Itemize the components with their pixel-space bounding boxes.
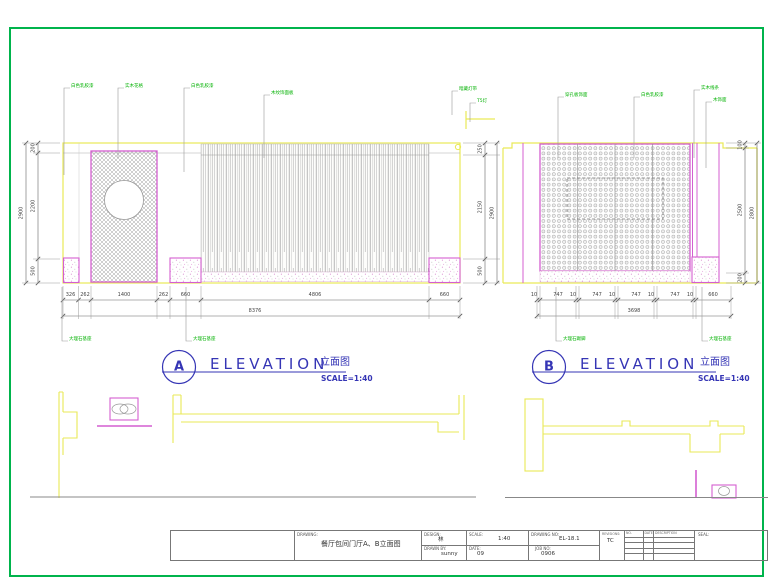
plan-furniture-b <box>696 470 736 498</box>
tb-rev-line <box>624 553 694 554</box>
wood-slat-panel <box>201 144 429 272</box>
rev-col-no: NO. <box>626 532 632 535</box>
plan-view-a <box>59 392 464 498</box>
plan-furniture-a <box>97 398 152 426</box>
tb-rev-line <box>624 548 694 549</box>
tb-divider <box>294 531 295 560</box>
drawing-canvas <box>0 0 780 585</box>
plan-view-b <box>525 399 744 471</box>
drawing-no-label: DRAWING NO: <box>531 533 559 537</box>
tb-divider <box>599 531 600 560</box>
ground-lines <box>30 497 768 498</box>
base-block <box>692 257 719 283</box>
stone-skirting-a <box>201 272 429 282</box>
drawing-no-value: EL-18.1 <box>559 537 580 543</box>
annotation-leader <box>186 287 192 341</box>
title-block: DRAWING: 餐厅包间门厅A、B立面图 DESIGN: 林 DRAWN BY… <box>170 530 768 561</box>
base-block <box>170 258 201 283</box>
scale-value: 1:40 <box>498 537 510 543</box>
tb-rev-line <box>624 542 694 543</box>
rev-col-desc: DESCRIPTION <box>655 532 677 535</box>
annotation-leader <box>702 287 708 341</box>
lattice-circle-window <box>105 181 144 220</box>
date-value: 09 <box>477 552 484 558</box>
drawing-title: 餐厅包间门厅A、B立面图 <box>321 541 401 548</box>
design-value: 林 <box>438 538 444 544</box>
base-block <box>429 258 460 283</box>
title-marker-b <box>532 351 716 384</box>
seal-label: SEAL: <box>698 533 709 537</box>
title-marker-a <box>162 351 346 384</box>
tb-divider <box>694 531 695 560</box>
revisions-label: REVISIONS: <box>602 533 620 536</box>
tb-divider <box>421 545 599 546</box>
tb-rev-line <box>653 531 654 560</box>
tb-rev-line <box>624 537 694 538</box>
scale-label: SCALE: <box>469 533 483 537</box>
drawing-label: DRAWING: <box>297 533 318 537</box>
revisions-value: TC <box>607 539 614 545</box>
cove-light-symbol <box>466 111 495 129</box>
page-border <box>10 28 763 576</box>
job-no-value: 0906 <box>541 552 555 558</box>
cad-sheet: A ELEVATION 立面图 SCALE=1:40 B ELEVATION 立… <box>0 0 780 585</box>
annotation-leader <box>706 102 712 168</box>
base-block <box>64 258 80 283</box>
drawn-by-value: sunny <box>441 552 458 558</box>
elevation-a-drawing <box>63 111 495 283</box>
rev-col-date: DATE <box>645 532 653 535</box>
stone-skirting-b <box>540 271 690 282</box>
annotation-leader <box>556 287 562 341</box>
annotation-leader <box>452 91 458 115</box>
tb-divider <box>624 531 625 560</box>
elevation-b-drawing <box>503 143 757 283</box>
tb-rev-line <box>643 531 644 560</box>
